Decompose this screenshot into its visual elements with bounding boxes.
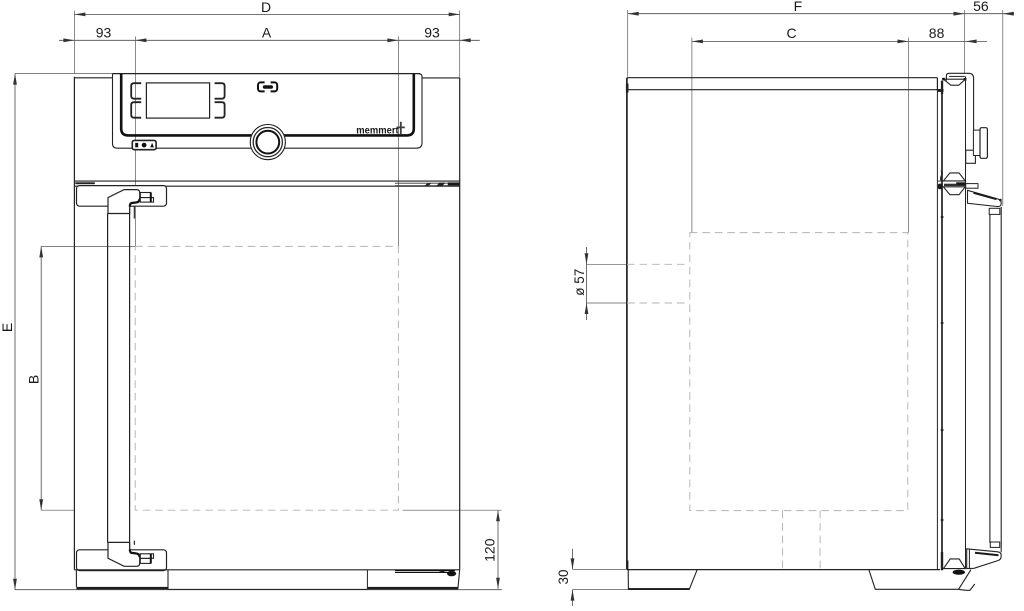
svg-text:ø 57: ø 57 — [572, 269, 587, 296]
svg-text:120: 120 — [482, 538, 498, 562]
svg-text:30: 30 — [556, 569, 571, 584]
svg-text:93: 93 — [424, 25, 440, 41]
svg-text:93: 93 — [96, 25, 112, 41]
svg-text:E: E — [0, 323, 15, 332]
svg-text:88: 88 — [929, 25, 945, 41]
svg-text:memmert: memmert — [356, 125, 399, 136]
svg-text:B: B — [26, 375, 42, 384]
svg-text:C: C — [786, 25, 796, 41]
svg-text:A: A — [262, 25, 272, 41]
svg-text:D: D — [261, 0, 271, 15]
svg-text:56: 56 — [973, 0, 989, 14]
svg-text:F: F — [794, 0, 803, 14]
